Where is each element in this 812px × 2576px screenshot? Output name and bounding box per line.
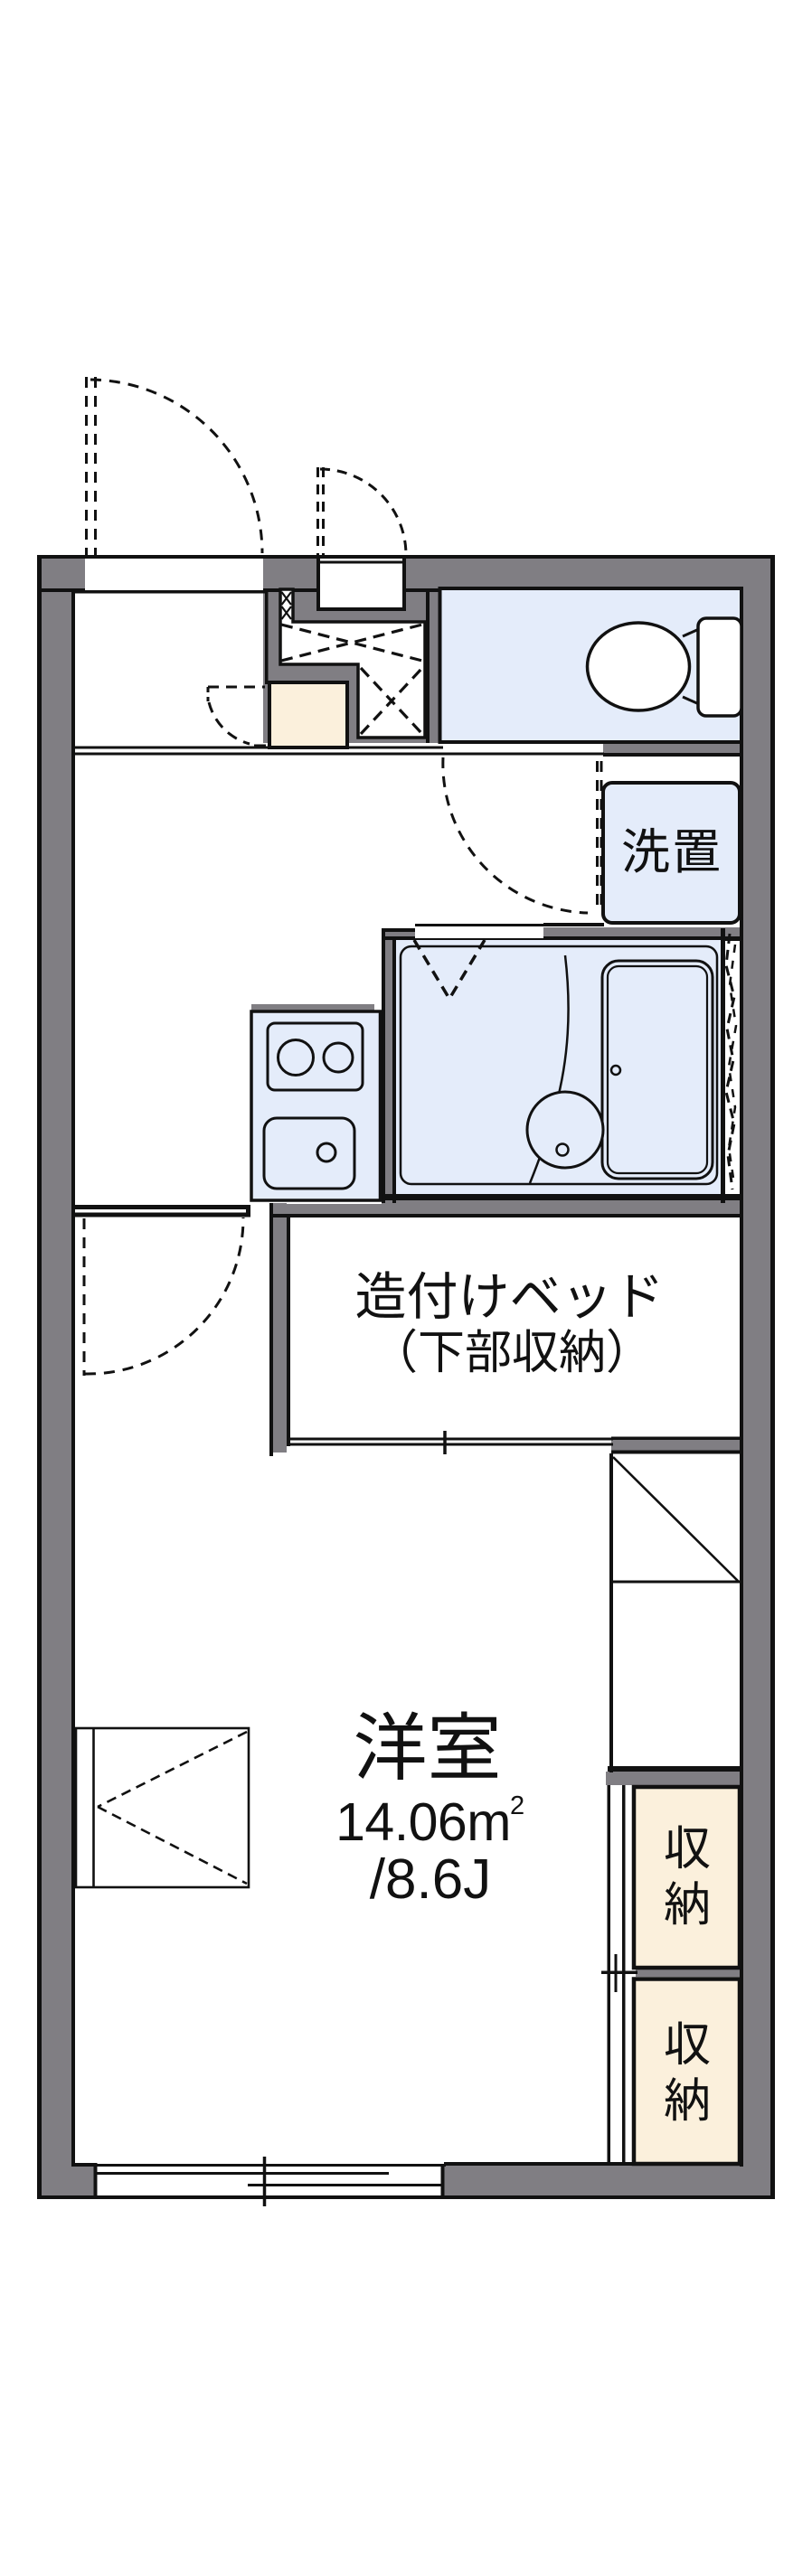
svg-text:/8.6J: /8.6J <box>370 1848 491 1911</box>
svg-text:2: 2 <box>510 1791 524 1820</box>
svg-text:14.06m: 14.06m <box>335 1792 511 1852</box>
